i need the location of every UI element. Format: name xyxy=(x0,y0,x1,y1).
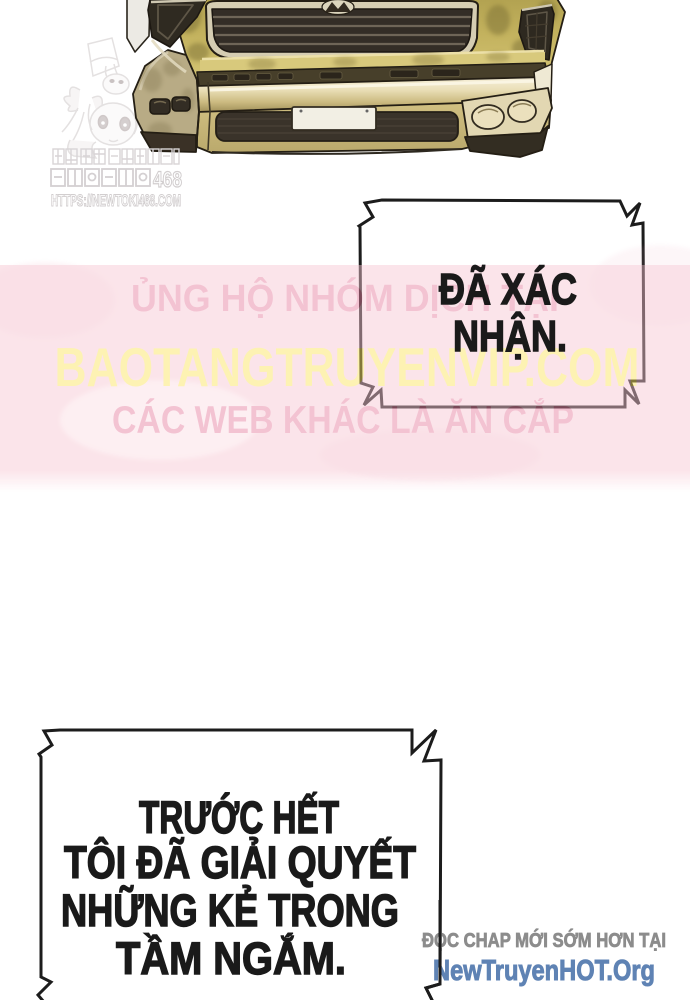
svg-text:468: 468 xyxy=(153,167,182,192)
svg-text:CÁC WEB KHÁC LÀ ĂN CẮP: CÁC WEB KHÁC LÀ ĂN CẮP xyxy=(112,398,574,442)
svg-text:ĐỌC CHAP MỚI SỚM HƠN TẠI: ĐỌC CHAP MỚI SỚM HƠN TẠI xyxy=(422,928,666,952)
svg-text:NHỮNG KẺ TRONG: NHỮNG KẺ TRONG xyxy=(61,885,399,936)
svg-text:ĐÃ XÁC: ĐÃ XÁC xyxy=(439,264,577,314)
svg-text:NHẬN.: NHẬN. xyxy=(453,311,567,361)
svg-text:NewTruyenHOT.Org: NewTruyenHOT.Org xyxy=(433,955,655,987)
svg-text:HTTPS://NEWTOKI468.COM: HTTPS://NEWTOKI468.COM xyxy=(51,191,181,210)
svg-text:TÔI ĐÃ GIẢI QUYẾT: TÔI ĐÃ GIẢI QUYẾT xyxy=(64,837,416,888)
svg-text:TRƯỚC HẾT: TRƯỚC HẾT xyxy=(139,792,339,843)
svg-text:TẦM NGẮM.: TẦM NGẮM. xyxy=(116,933,346,984)
